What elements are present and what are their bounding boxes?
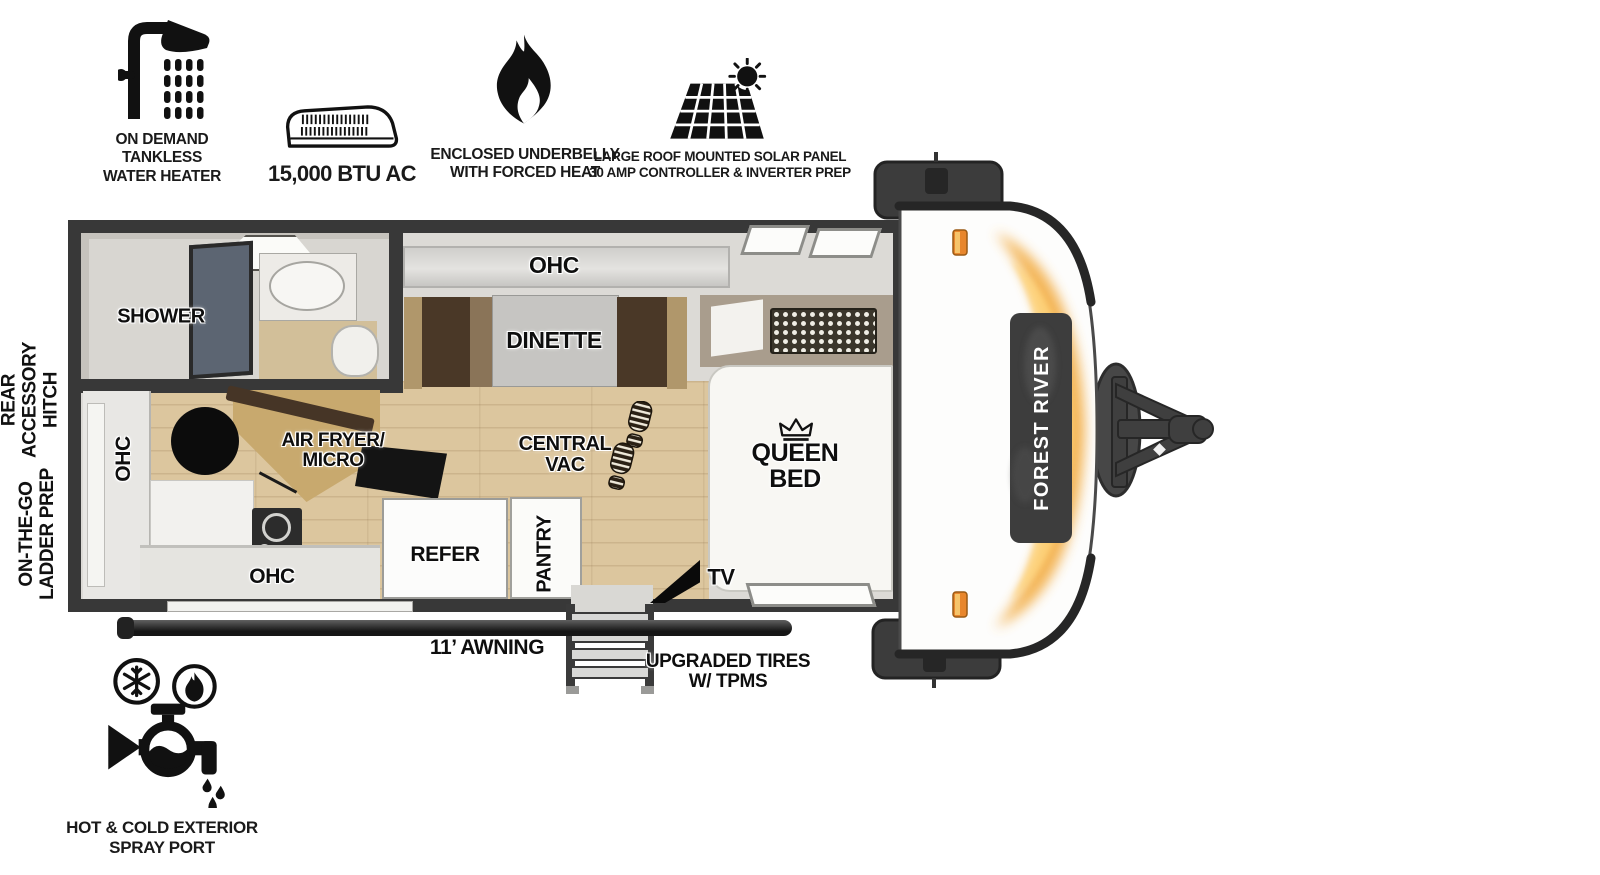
queen-bed-label: QUEEN BED bbox=[746, 440, 844, 493]
spray-port-caption: HOT & COLD EXTERIOR SPRAY PORT bbox=[66, 818, 258, 858]
entry-steps bbox=[566, 604, 654, 694]
front-cap-assembly: FOREST RIVER bbox=[835, 140, 1225, 700]
dinette-bench-right bbox=[617, 297, 667, 387]
ohc-bottom-label: OHC bbox=[249, 566, 294, 588]
pantry-label: PANTRY bbox=[535, 515, 556, 593]
awning-bar bbox=[124, 620, 792, 636]
awning-end-cap bbox=[117, 617, 134, 639]
ladder-prep-label: ON-THE-GO LADDER PREP bbox=[17, 459, 59, 609]
burner-large bbox=[262, 513, 291, 542]
tankless-water-heater-icon bbox=[118, 15, 214, 121]
solar-caption: LARGE ROOF MOUNTED SOLAR PANEL 30 AMP CO… bbox=[589, 149, 851, 181]
rv-floorplan-page: ON DEMAND TANKLESS WATER HEATER 15,000 B… bbox=[0, 0, 1600, 875]
refer-label: REFER bbox=[410, 544, 479, 566]
footprints-icon bbox=[608, 401, 654, 493]
bed-sheet-fold bbox=[711, 299, 763, 356]
front-window-1 bbox=[740, 225, 810, 255]
tires-label: UPGRADED TIRES W/ TPMS bbox=[646, 652, 810, 692]
dinette-bench-left bbox=[422, 297, 470, 387]
water-heater-caption: ON DEMAND TANKLESS WATER HEATER bbox=[103, 131, 221, 186]
shower-label: SHOWER bbox=[117, 307, 205, 328]
bathroom-wall-right bbox=[389, 233, 403, 393]
snowflake-glyph bbox=[124, 667, 148, 695]
brand-badge: FOREST RIVER bbox=[1010, 313, 1072, 543]
kitchen-side-window bbox=[167, 601, 413, 612]
dinette-seatback-left bbox=[470, 297, 492, 387]
ac-caption: 15,000 BTU AC bbox=[268, 161, 416, 187]
marker-light-top bbox=[953, 230, 967, 255]
trailer-body: SHOWER OHC DINETTE CENTRAL VAC QUEEN BED… bbox=[68, 220, 906, 612]
flame-glyph bbox=[185, 672, 203, 701]
ohc-top-label: OHC bbox=[529, 253, 579, 277]
brand-text: FOREST RIVER bbox=[1031, 345, 1053, 511]
marker-light-bottom bbox=[953, 592, 967, 617]
awning-label: 11’ AWNING bbox=[430, 637, 544, 659]
kitchen-left-window bbox=[87, 403, 105, 587]
ohc-left-label: OHC bbox=[113, 436, 135, 481]
forced-heat-flame-icon bbox=[490, 28, 558, 132]
dinette-panel-left bbox=[404, 297, 422, 389]
step-tread bbox=[570, 648, 650, 661]
tv-label: TV bbox=[707, 565, 734, 588]
spray-port-icon bbox=[98, 656, 230, 808]
air-fryer-label: AIR FRYER/ MICRO bbox=[282, 431, 385, 471]
dinette-panel-right bbox=[667, 297, 687, 389]
solar-panel-icon bbox=[664, 58, 770, 146]
kitchen-sink-basin bbox=[171, 407, 239, 475]
toilet bbox=[331, 325, 379, 377]
step-tread bbox=[570, 666, 650, 679]
ac-unit-icon bbox=[280, 103, 404, 151]
step-foot-left bbox=[566, 686, 579, 694]
central-vac-label: CENTRAL VAC bbox=[519, 434, 612, 476]
bathroom-sink bbox=[269, 261, 345, 311]
hitch-a-frame bbox=[1112, 377, 1213, 487]
dinette-label: DINETTE bbox=[506, 328, 602, 352]
kitchen-counter-white bbox=[150, 480, 254, 548]
